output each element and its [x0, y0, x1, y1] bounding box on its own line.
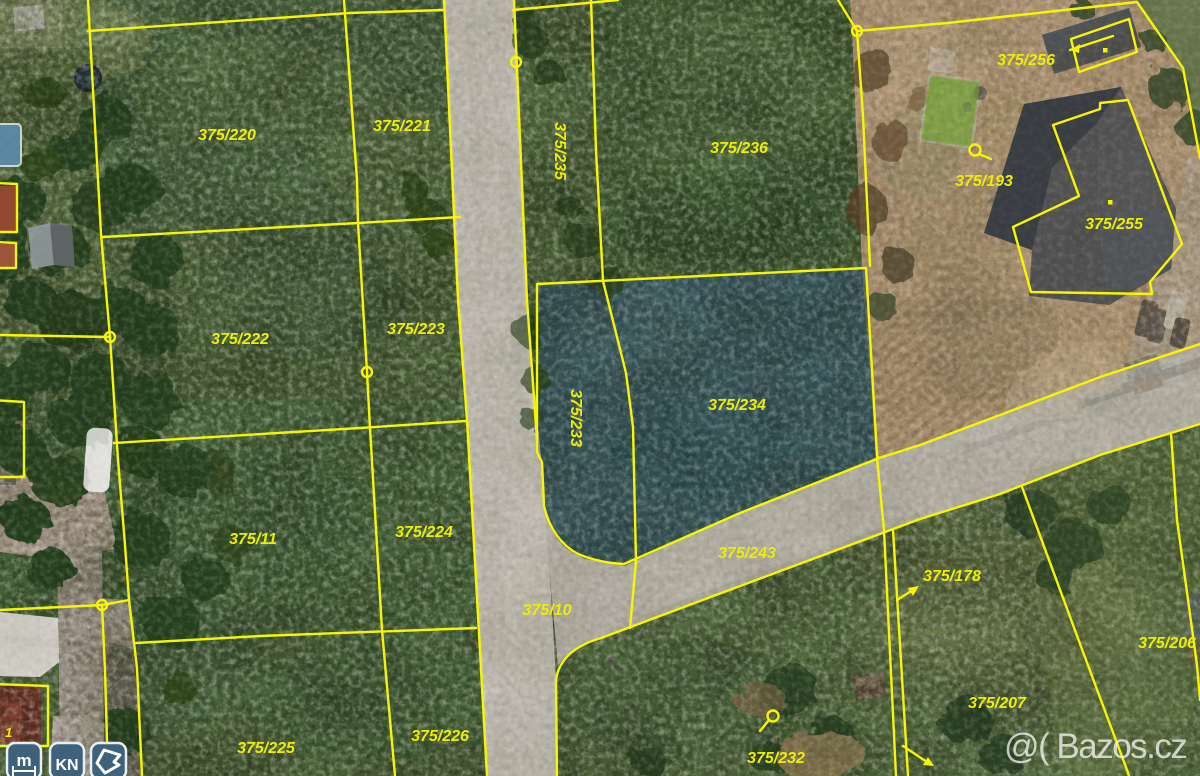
svg-text:1: 1	[5, 725, 12, 740]
svg-text:375/226: 375/226	[411, 728, 469, 745]
svg-text:375/207: 375/207	[968, 695, 1027, 712]
svg-text:375/256: 375/256	[997, 52, 1055, 69]
svg-text:375/243: 375/243	[718, 545, 776, 562]
svg-text:375/206: 375/206	[1138, 635, 1196, 652]
svg-text:m: m	[16, 751, 31, 770]
svg-text:375/223: 375/223	[387, 321, 445, 338]
svg-text:375/232: 375/232	[747, 750, 805, 767]
svg-text:375/193: 375/193	[955, 173, 1013, 190]
svg-text:375/235: 375/235	[551, 122, 568, 181]
svg-text:375/225: 375/225	[237, 740, 296, 757]
svg-text:KN: KN	[55, 757, 78, 774]
svg-text:375/234: 375/234	[708, 397, 766, 414]
svg-text:375/224: 375/224	[395, 524, 453, 541]
svg-text:375/255: 375/255	[1085, 216, 1144, 233]
svg-text:375/221: 375/221	[373, 118, 431, 135]
svg-text:375/178: 375/178	[923, 568, 981, 585]
svg-text:375/11: 375/11	[229, 531, 277, 548]
svg-text:375/220: 375/220	[198, 127, 256, 144]
svg-text:375/222: 375/222	[211, 331, 269, 348]
svg-text:375/236: 375/236	[710, 140, 768, 157]
svg-text:375/10: 375/10	[523, 602, 572, 619]
svg-text:375/233: 375/233	[567, 389, 584, 447]
svg-text:@( Bazos.cz: @( Bazos.cz	[1004, 727, 1186, 766]
